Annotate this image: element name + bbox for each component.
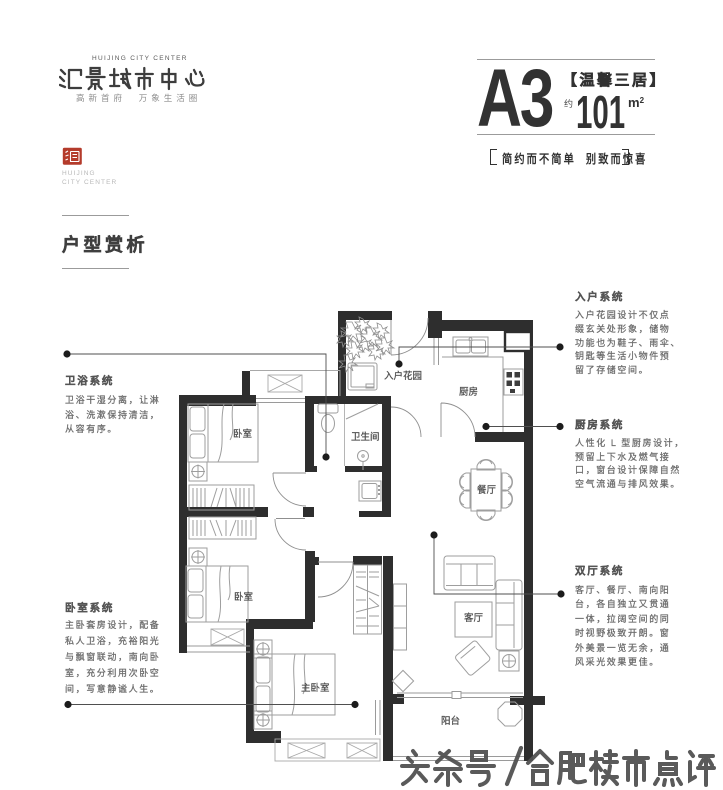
svg-text:卧室: 卧室	[233, 428, 252, 440]
svg-text:厨房: 厨房	[459, 386, 478, 398]
svg-text:阳台: 阳台	[441, 715, 460, 727]
svg-text:餐厅: 餐厅	[477, 484, 497, 496]
svg-text:主卧室: 主卧室	[301, 682, 330, 694]
svg-text:客厅: 客厅	[464, 612, 484, 624]
svg-text:卧室: 卧室	[234, 591, 253, 603]
svg-text:入户花园: 入户花园	[384, 370, 422, 382]
svg-text:卫生间: 卫生间	[351, 431, 380, 443]
